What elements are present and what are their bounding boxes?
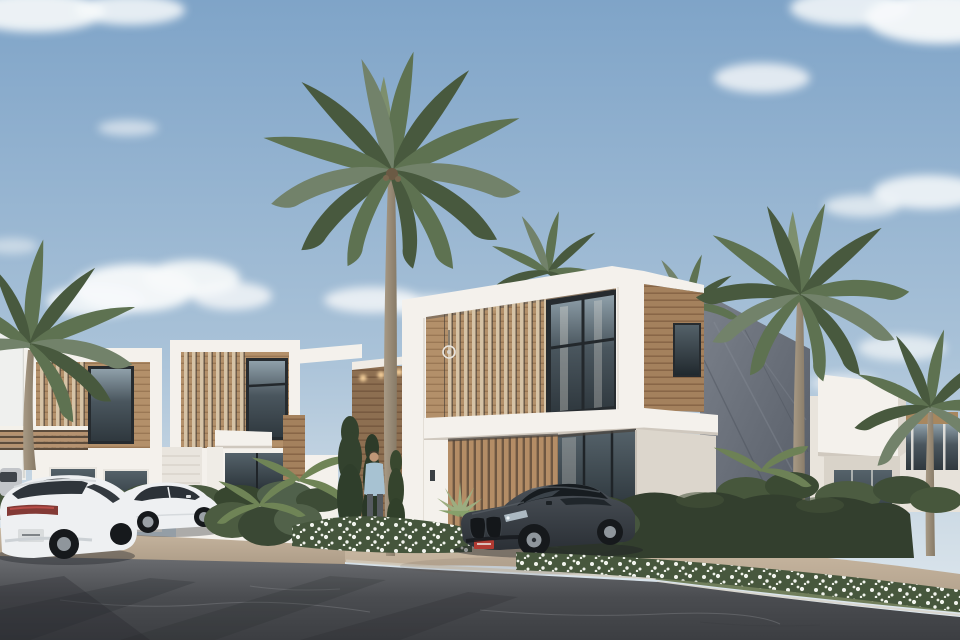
rendering-canvas xyxy=(0,0,960,640)
middle-villa-window xyxy=(249,361,285,437)
sedan-mirror xyxy=(186,495,191,498)
villa-scene xyxy=(0,0,960,640)
left-end-wall xyxy=(0,330,26,480)
person-leg xyxy=(377,494,383,520)
person-shirt xyxy=(364,463,385,497)
person-head xyxy=(369,452,378,461)
canopy-slab xyxy=(215,430,272,447)
kidney-grille xyxy=(486,516,502,538)
slat-fence xyxy=(0,430,88,450)
frame-left-pillar xyxy=(402,300,426,536)
suv-wheel-front xyxy=(110,523,132,545)
coupe-mirror xyxy=(546,501,552,505)
curtain-reflection xyxy=(560,306,568,411)
louver-screen xyxy=(444,299,546,422)
wall-lamp xyxy=(430,470,435,481)
frame-right-pillar xyxy=(616,282,644,414)
kidney-grille xyxy=(470,517,486,539)
left-villa-window xyxy=(91,369,131,441)
wing-window xyxy=(674,324,700,376)
